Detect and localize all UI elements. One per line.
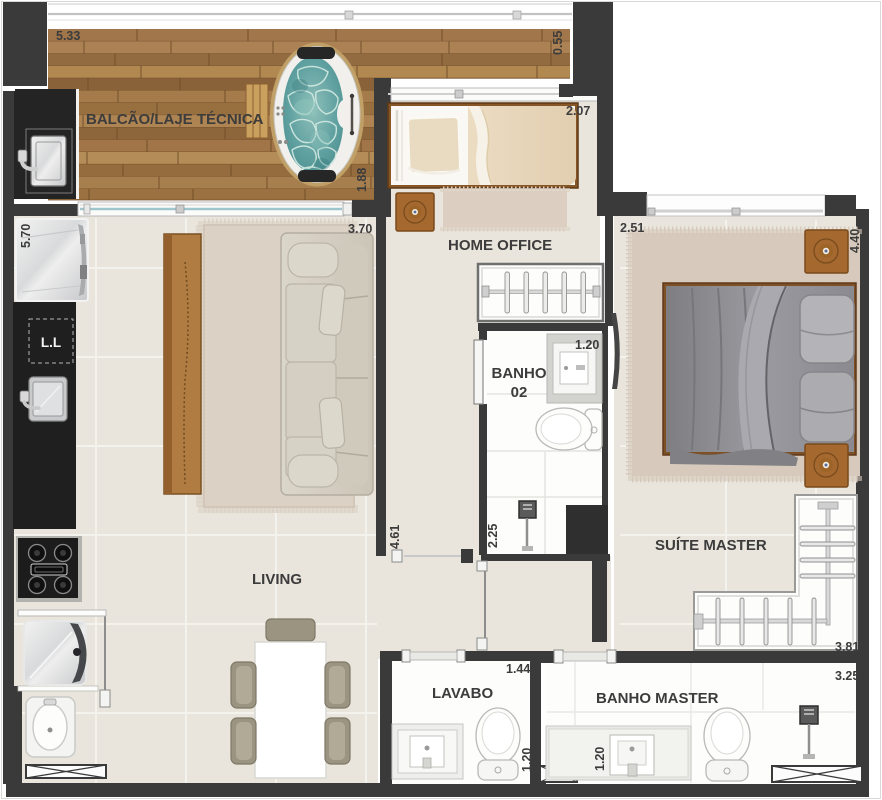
svg-text:1.20: 1.20 (575, 338, 599, 352)
svg-text:4.61: 4.61 (388, 525, 402, 549)
svg-text:2.25: 2.25 (486, 524, 500, 548)
svg-text:3.25: 3.25 (835, 669, 859, 683)
svg-text:1.44: 1.44 (506, 662, 530, 676)
svg-text:1.20: 1.20 (520, 748, 534, 772)
svg-text:1.88: 1.88 (355, 168, 369, 192)
svg-text:1.20: 1.20 (593, 747, 607, 771)
svg-text:3.81: 3.81 (835, 640, 859, 654)
svg-text:HOME OFFICE: HOME OFFICE (448, 237, 552, 254)
svg-text:LAVABO: LAVABO (432, 685, 493, 702)
svg-text:4.40: 4.40 (848, 229, 862, 253)
svg-text:L.L: L.L (41, 335, 61, 350)
svg-text:0.55: 0.55 (551, 31, 565, 55)
svg-text:BALCÃO/LAJE TÉCNICA: BALCÃO/LAJE TÉCNICA (86, 110, 264, 128)
svg-text:SUÍTE MASTER: SUÍTE MASTER (655, 537, 767, 554)
svg-text:2.07: 2.07 (566, 104, 590, 118)
svg-text:5.33: 5.33 (56, 29, 80, 43)
svg-text:3.70: 3.70 (348, 222, 372, 236)
svg-text:LIVING: LIVING (252, 571, 302, 588)
svg-text:5.70: 5.70 (19, 224, 33, 248)
svg-text:02: 02 (511, 384, 528, 401)
svg-text:2.51: 2.51 (620, 221, 644, 235)
svg-text:BANHO: BANHO (492, 365, 547, 382)
svg-text:BANHO MASTER: BANHO MASTER (596, 690, 719, 707)
